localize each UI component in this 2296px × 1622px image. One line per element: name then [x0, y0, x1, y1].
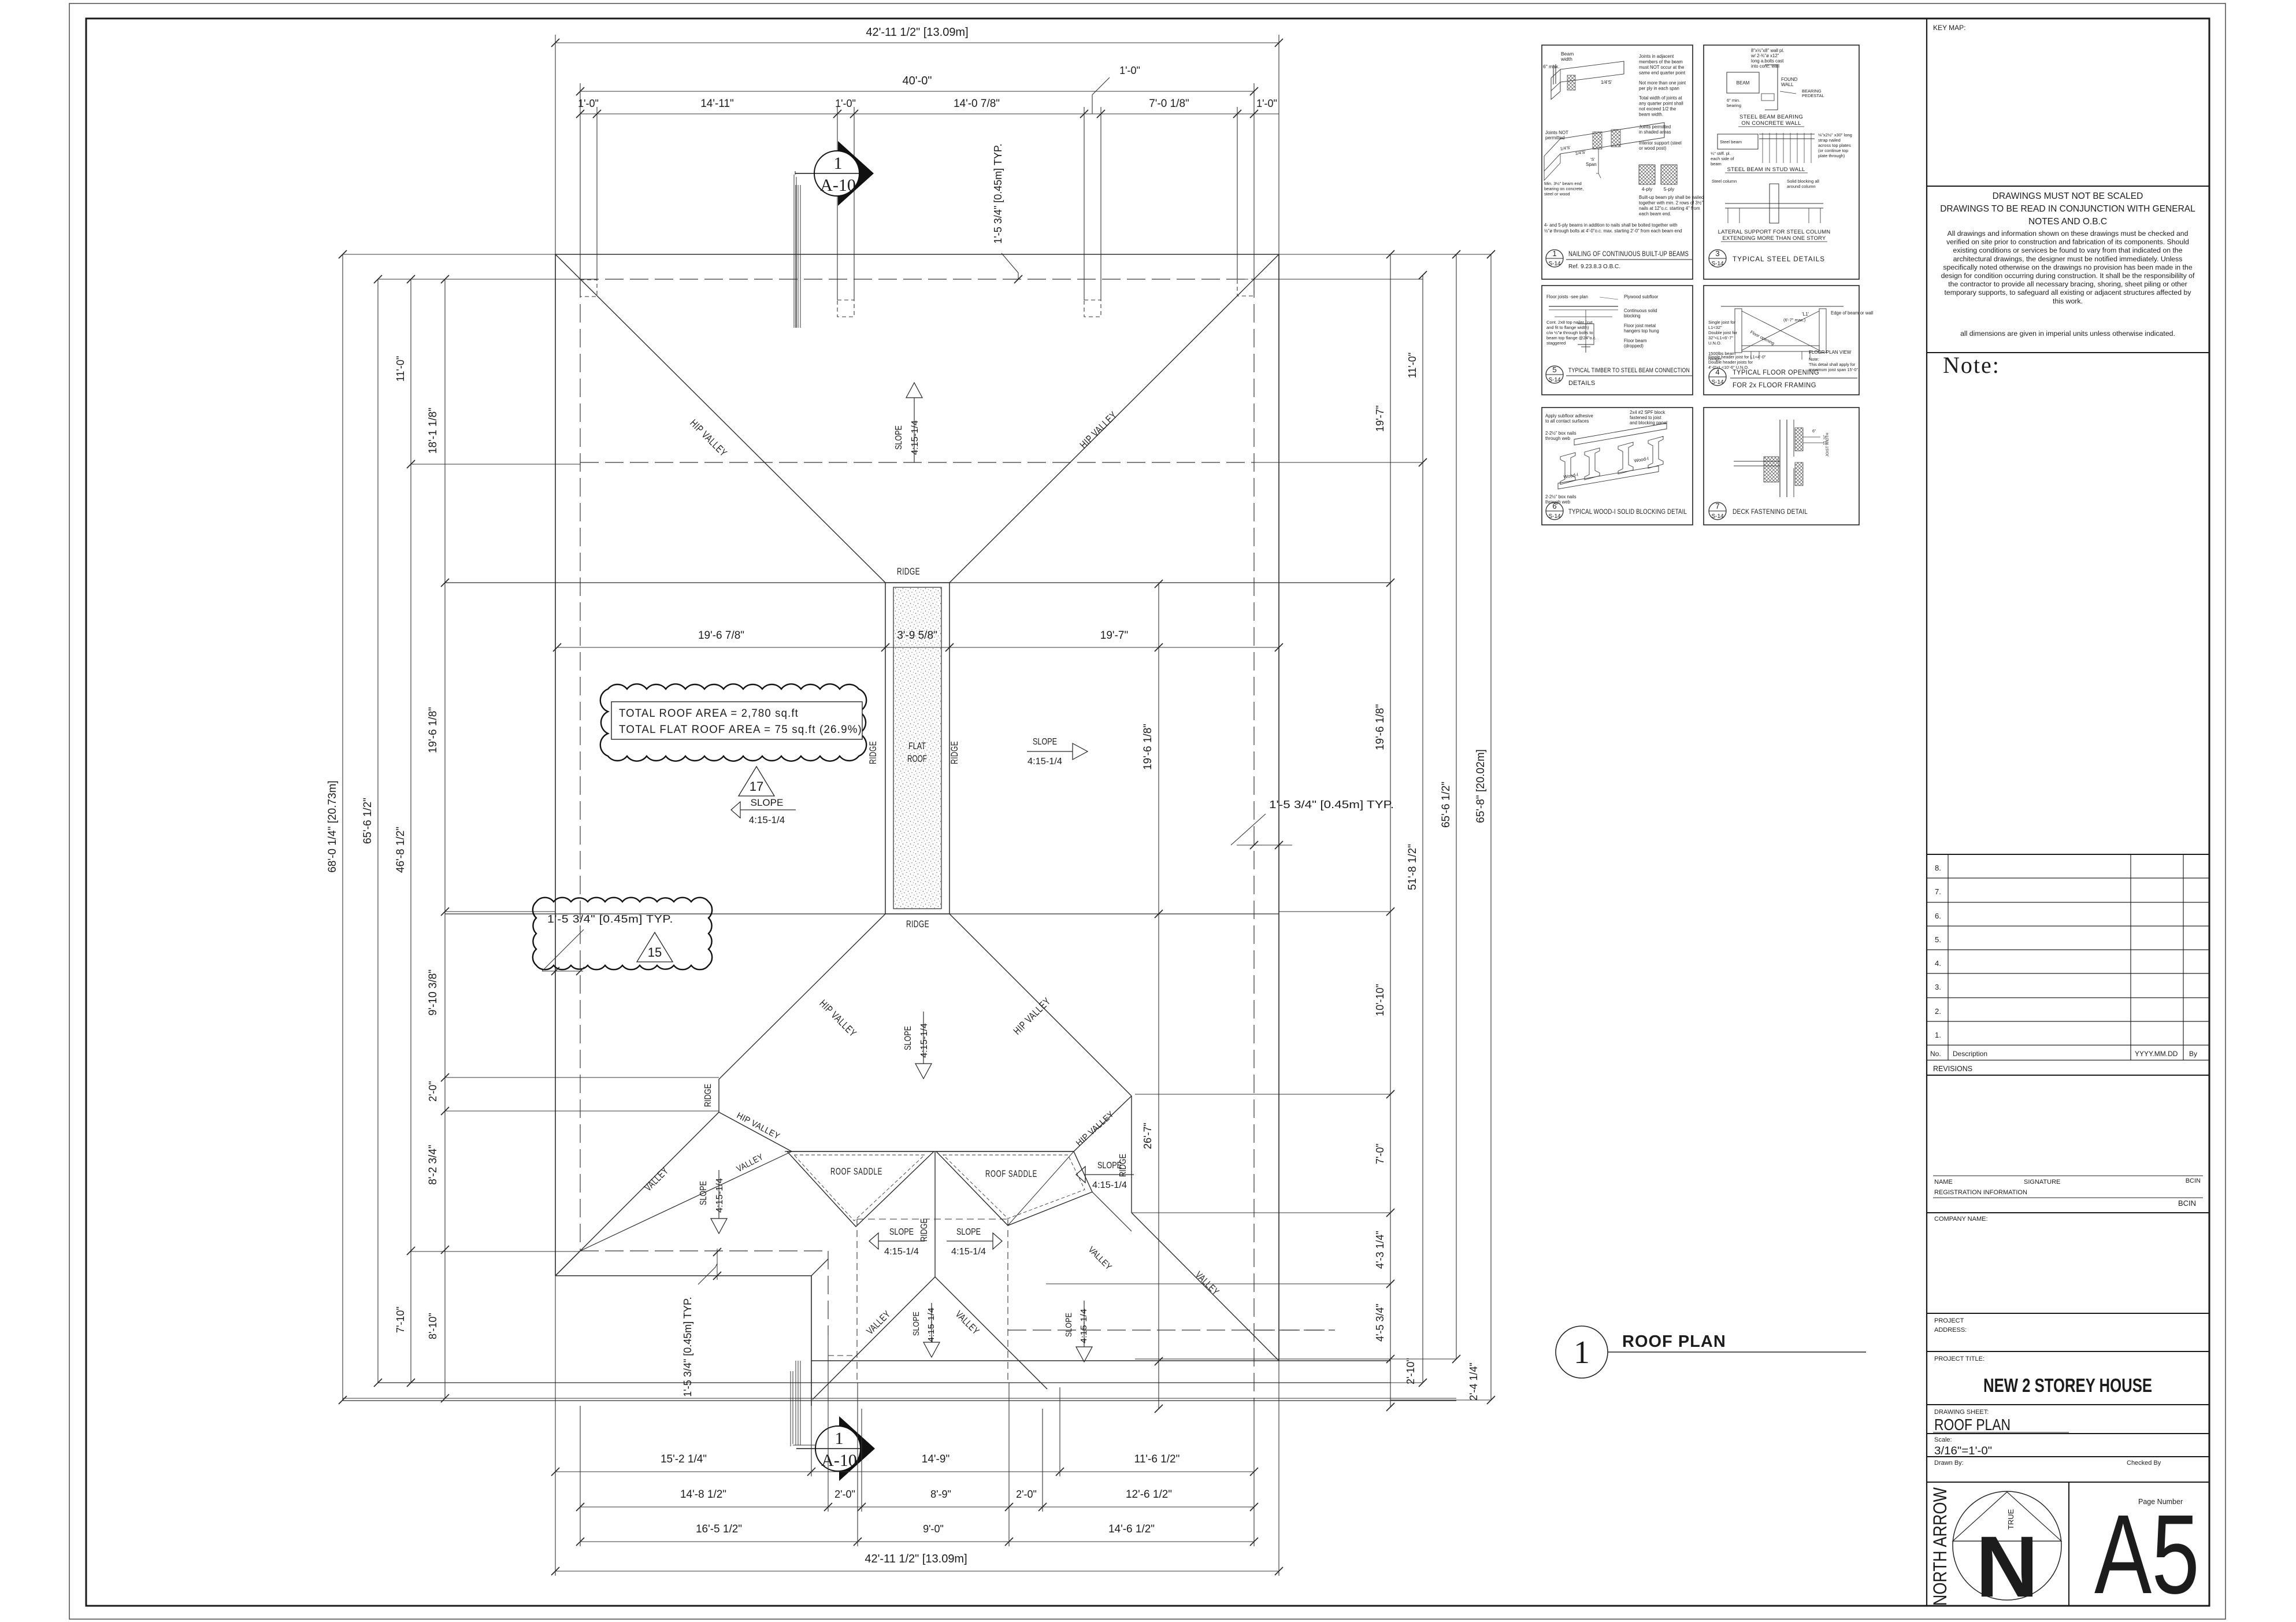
svg-text:18'-1 1/8": 18'-1 1/8" — [427, 408, 439, 454]
svg-text:8'-2 3/4": 8'-2 3/4" — [427, 1145, 439, 1185]
svg-text:this work.: this work. — [2053, 297, 2083, 305]
svg-text:must NOT occur at the: must NOT occur at the — [1639, 65, 1684, 70]
svg-text:A-10: A-10 — [821, 1451, 857, 1470]
svg-text:long a.bolts cast: long a.bolts cast — [1751, 58, 1784, 64]
svg-text:verified on site prior to cons: verified on site prior to construction a… — [1946, 238, 2189, 246]
svg-text:beam width.: beam width. — [1639, 112, 1663, 117]
svg-text:BEAM: BEAM — [1737, 80, 1750, 86]
svg-text:14'-9": 14'-9" — [922, 1453, 949, 1465]
svg-text:5.: 5. — [1935, 935, 1941, 944]
svg-text:SLOPE: SLOPE — [894, 425, 904, 450]
svg-text:across top plates: across top plates — [1818, 143, 1851, 148]
svg-text:Joints permitted: Joints permitted — [1639, 124, 1671, 129]
svg-text:KEY MAP:: KEY MAP: — [1933, 24, 1965, 32]
svg-text:4:15-1/4: 4:15-1/4 — [1092, 1180, 1127, 1190]
svg-text:SLOPE: SLOPE — [889, 1227, 914, 1237]
svg-text:DRAWING SHEET:: DRAWING SHEET: — [1934, 1409, 1989, 1416]
svg-text:BCIN: BCIN — [2186, 1177, 2201, 1184]
svg-text:in shaded areas: in shaded areas — [1639, 129, 1671, 135]
svg-text:RIDGE: RIDGE — [897, 566, 920, 577]
svg-text:fastened to joist: fastened to joist — [1630, 415, 1661, 420]
svg-text:19'-6 1/8": 19'-6 1/8" — [427, 707, 439, 753]
svg-text:Interior support (steel: Interior support (steel — [1639, 140, 1682, 146]
svg-text:14'-8 1/2": 14'-8 1/2" — [680, 1488, 726, 1501]
svg-text:19'-6 1/8": 19'-6 1/8" — [1374, 704, 1386, 750]
svg-text:1: 1 — [835, 1429, 844, 1448]
svg-text:1: 1 — [1574, 1335, 1590, 1371]
svg-text:⅛"x2½" x30" long: ⅛"x2½" x30" long — [1818, 132, 1852, 138]
svg-text:(dropped): (dropped) — [1624, 343, 1644, 349]
svg-text:S-14: S-14 — [1711, 379, 1724, 386]
svg-text:4:15-1/4: 4:15-1/4 — [926, 1308, 936, 1342]
svg-text:2'-10": 2'-10" — [1405, 1358, 1416, 1384]
svg-text:Note:: Note: — [1943, 352, 2000, 378]
svg-text:RIDGE: RIDGE — [703, 1084, 713, 1107]
svg-text:1'-0": 1'-0" — [578, 98, 599, 109]
svg-text:TYPICAL FLOOR OPENING: TYPICAL FLOOR OPENING — [1733, 368, 1819, 376]
svg-text:14'-11": 14'-11" — [700, 98, 734, 110]
svg-text:6.: 6. — [1935, 912, 1941, 920]
svg-text:Scale:: Scale: — [1934, 1436, 1952, 1443]
svg-text:Drawn By:: Drawn By: — [1934, 1460, 1964, 1467]
svg-text:5: 5 — [1552, 365, 1556, 374]
svg-text:By: By — [2189, 1050, 2197, 1058]
svg-text:2'-0": 2'-0" — [427, 1081, 439, 1102]
svg-text:each side of: each side of — [1711, 156, 1734, 161]
svg-text:U.N.O.: U.N.O. — [1708, 340, 1722, 346]
svg-text:46'-8 1/2": 46'-8 1/2" — [395, 827, 407, 873]
svg-text:51'-8 1/2": 51'-8 1/2" — [1407, 844, 1419, 890]
svg-text:Solid blocking all: Solid blocking all — [1787, 179, 1819, 184]
svg-text:COMPANY NAME:: COMPANY NAME: — [1934, 1216, 1988, 1223]
svg-text:1'-0": 1'-0" — [835, 98, 856, 109]
svg-text:specifically noted otherwise o: specifically noted otherwise on the draw… — [1943, 263, 2192, 271]
svg-text:NOTES AND O.B.C: NOTES AND O.B.C — [2028, 217, 2107, 227]
svg-text:2-2½" box nails: 2-2½" box nails — [1545, 431, 1577, 436]
svg-text:Edge of beam or wall: Edge of beam or wall — [1831, 310, 1874, 316]
svg-text:4:15-1/4: 4:15-1/4 — [951, 1247, 986, 1257]
svg-text:19'-6 7/8": 19'-6 7/8" — [698, 629, 744, 642]
svg-text:65'-6 1/2": 65'-6 1/2" — [1440, 782, 1452, 828]
svg-text:7.: 7. — [1935, 887, 1941, 896]
svg-text:Ref. 9.23.8.3 O.B.C.: Ref. 9.23.8.3 O.B.C. — [1568, 264, 1620, 270]
svg-text:BCIN: BCIN — [2178, 1199, 2196, 1208]
svg-text:4'-3 1/4": 4'-3 1/4" — [1374, 1231, 1386, 1269]
svg-text:8'-9": 8'-9" — [930, 1488, 951, 1500]
svg-text:JOIST WIDTH: JOIST WIDTH — [1826, 432, 1830, 457]
svg-text:9'-0": 9'-0" — [923, 1523, 944, 1535]
svg-text:SLOPE: SLOPE — [903, 1026, 913, 1050]
svg-text:into conc. wall: into conc. wall — [1751, 64, 1779, 69]
svg-text:19'-7": 19'-7" — [1100, 629, 1128, 642]
svg-text:14'-0 7/8": 14'-0 7/8" — [954, 98, 1000, 110]
svg-text:Joints NOT: Joints NOT — [1545, 130, 1568, 135]
svg-text:the contractor to provide all: the contractor to provide all necessary … — [1948, 280, 2187, 288]
svg-text:Note:: Note: — [1809, 357, 1819, 362]
svg-text:LATERAL SUPPORT FOR STEEL COLU: LATERAL SUPPORT FOR STEEL COLUMN — [1718, 229, 1831, 235]
svg-text:10'-10": 10'-10" — [1374, 984, 1386, 1016]
svg-text:TYPICAL STEEL DETAILS: TYPICAL STEEL DETAILS — [1733, 255, 1825, 263]
svg-text:4:15-1/4: 4:15-1/4 — [910, 420, 920, 455]
svg-text:Floor beam: Floor beam — [1624, 338, 1646, 343]
svg-text:Description: Description — [1953, 1050, 1987, 1058]
svg-text:6" max.: 6" max. — [1543, 64, 1560, 69]
svg-text:ADDRESS:: ADDRESS: — [1934, 1327, 1967, 1334]
svg-text:NAILING OF CONTINUOUS BUILT-UP: NAILING OF CONTINUOUS BUILT-UP BEAMS — [1568, 251, 1689, 258]
svg-text:Plywood subfloor: Plywood subfloor — [1624, 294, 1659, 299]
svg-text:all dimensions are given in im: all dimensions are given in imperial uni… — [1960, 329, 2175, 338]
svg-text:STEEL BEAM BEARING: STEEL BEAM BEARING — [1739, 114, 1803, 120]
svg-text:'S': 'S' — [1590, 157, 1595, 162]
svg-text:4: 4 — [1715, 368, 1719, 376]
svg-text:bearing: bearing — [1727, 103, 1741, 108]
svg-text:SLOPE: SLOPE — [1097, 1161, 1122, 1171]
svg-text:7: 7 — [1715, 502, 1719, 510]
svg-text:S-14: S-14 — [1711, 513, 1724, 520]
svg-text:6: 6 — [1552, 502, 1556, 510]
svg-text:ROOF SADDLE: ROOF SADDLE — [985, 1168, 1037, 1179]
svg-text:15: 15 — [648, 945, 662, 960]
svg-text:nails at 12"o.c. starting 4" f: nails at 12"o.c. starting 4" from — [1639, 206, 1700, 211]
svg-text:40'-0": 40'-0" — [903, 75, 932, 87]
svg-text:strap nailed: strap nailed — [1818, 138, 1841, 143]
svg-text:NAME: NAME — [1934, 1179, 1953, 1186]
svg-text:A5: A5 — [2094, 1491, 2199, 1617]
svg-text:c/w ½"ø through bolts to: c/w ½"ø through bolts to — [1546, 330, 1593, 335]
svg-text:68'-0 1/4" [20.73m]: 68'-0 1/4" [20.73m] — [327, 780, 339, 872]
svg-text:1'-5 3/4" [0.45m] TYP.: 1'-5 3/4" [0.45m] TYP. — [992, 143, 1004, 243]
svg-text:DRAWINGS TO BE READ IN CONJUNC: DRAWINGS TO BE READ IN CONJUNCTION WITH … — [1940, 204, 2195, 214]
svg-text:members of the beam: members of the beam — [1639, 60, 1683, 65]
svg-text:7'-0 1/8": 7'-0 1/8" — [1149, 98, 1189, 110]
svg-text:3: 3 — [1715, 249, 1719, 258]
svg-text:not exceed 1/2 the: not exceed 1/2 the — [1639, 106, 1676, 112]
svg-text:and fit to flange width): and fit to flange width) — [1546, 325, 1589, 330]
svg-text:11'-0": 11'-0" — [1407, 353, 1418, 379]
svg-text:SLOPE: SLOPE — [911, 1312, 921, 1336]
svg-text:beam top flange @24"o.c.: beam top flange @24"o.c. — [1546, 335, 1597, 340]
svg-text:6": 6" — [1812, 429, 1816, 434]
svg-text:4:15-1/4: 4:15-1/4 — [919, 1023, 929, 1058]
svg-text:SIGNATURE: SIGNATURE — [2024, 1179, 2060, 1186]
svg-text:All drawings and information s: All drawings and information shown on th… — [1948, 229, 2189, 238]
svg-text:15'-2 1/4": 15'-2 1/4" — [661, 1453, 707, 1465]
svg-text:Single joist for: Single joist for — [1708, 320, 1736, 325]
svg-text:YYYY.MM.DD: YYYY.MM.DD — [2135, 1050, 2178, 1058]
svg-text:N: N — [1976, 1518, 2038, 1615]
svg-text:11'-0": 11'-0" — [395, 356, 406, 382]
svg-text:beam: beam — [1711, 161, 1722, 166]
svg-text:4.: 4. — [1935, 959, 1941, 968]
svg-text:permitted: permitted — [1545, 135, 1564, 140]
svg-text:1'-0": 1'-0" — [1119, 65, 1140, 76]
svg-text:blocking: blocking — [1624, 313, 1641, 319]
svg-text:REGISTRATION INFORMATION: REGISTRATION INFORMATION — [1934, 1189, 2027, 1196]
svg-text:EXTENDING MORE THAN ONE STORY: EXTENDING MORE THAN ONE STORY — [1723, 235, 1826, 242]
svg-text:17: 17 — [750, 779, 763, 794]
svg-text:7'-10": 7'-10" — [395, 1306, 406, 1333]
svg-text:4-ply: 4-ply — [1642, 186, 1653, 192]
svg-text:'L1': 'L1' — [1802, 312, 1809, 317]
svg-text:to all contact surfaces: to all contact surfaces — [1545, 419, 1589, 424]
svg-text:PROJECT: PROJECT — [1934, 1317, 1964, 1324]
svg-text:Not more than one joint: Not more than one joint — [1639, 80, 1686, 86]
svg-text:DECK FASTENING DETAIL: DECK FASTENING DETAIL — [1733, 509, 1808, 516]
svg-text:RIDGE: RIDGE — [867, 741, 878, 764]
svg-text:2'-0": 2'-0" — [1016, 1488, 1037, 1500]
svg-text:Floor joist metal: Floor joist metal — [1624, 323, 1656, 328]
svg-text:ON CONCRETE WALL: ON CONCRETE WALL — [1741, 120, 1801, 127]
svg-text:same end quarter point: same end quarter point — [1639, 71, 1686, 76]
svg-text:19'-6 1/8": 19'-6 1/8" — [1142, 724, 1154, 770]
svg-text:Apply subfloor adhesive: Apply subfloor adhesive — [1545, 413, 1593, 419]
svg-text:1'-5 3/4" [0.45m] TYP.: 1'-5 3/4" [0.45m] TYP. — [1269, 799, 1394, 810]
svg-text:WALL: WALL — [1781, 82, 1794, 87]
svg-text:42'-11 1/2" [13.09m]: 42'-11 1/2" [13.09m] — [865, 1553, 967, 1565]
svg-text:DETAILS: DETAILS — [1568, 380, 1595, 387]
svg-text:6" min.: 6" min. — [1727, 98, 1740, 103]
svg-text:FOUND: FOUND — [1781, 77, 1798, 82]
svg-text:(or continue top: (or continue top — [1818, 148, 1848, 153]
svg-text:REVISIONS: REVISIONS — [1933, 1065, 1972, 1073]
svg-text:3/16"=1'-0": 3/16"=1'-0" — [1934, 1445, 1992, 1457]
svg-text:½"ø through bolts at 4'-0"o.c.: ½"ø through bolts at 4'-0"o.c. max. star… — [1544, 228, 1682, 234]
svg-text:9'-10 3/8": 9'-10 3/8" — [427, 969, 439, 1016]
svg-text:DRAWINGS MUST NOT BE SCALED: DRAWINGS MUST NOT BE SCALED — [1993, 191, 2143, 201]
svg-text:8"x½"x8" wall pl.: 8"x½"x8" wall pl. — [1751, 48, 1784, 53]
svg-text:1: 1 — [1552, 249, 1556, 258]
svg-text:RIDGE: RIDGE — [919, 1219, 929, 1242]
svg-text:S-14: S-14 — [1711, 261, 1724, 267]
svg-text:ROOF PLAN: ROOF PLAN — [1934, 1416, 2011, 1434]
svg-text:each beam end.: each beam end. — [1639, 212, 1671, 217]
svg-text:staggered: staggered — [1546, 340, 1566, 346]
svg-text:per ply in each span: per ply in each span — [1639, 86, 1679, 91]
svg-text:through web: through web — [1545, 436, 1571, 441]
svg-text:SLOPE: SLOPE — [1033, 737, 1057, 747]
svg-text:4:15-1/4: 4:15-1/4 — [884, 1247, 919, 1257]
svg-text:4:15-1/4: 4:15-1/4 — [1028, 757, 1062, 766]
svg-text:ROOF SADDLE: ROOF SADDLE — [830, 1166, 882, 1177]
svg-text:1'-5 3/4" [0.45m] TYP.: 1'-5 3/4" [0.45m] TYP. — [547, 913, 673, 925]
svg-text:No.: No. — [1930, 1050, 1941, 1058]
svg-text:Min. 3½" beam end: Min. 3½" beam end — [1544, 181, 1582, 186]
svg-text:NEW 2 STOREY HOUSE: NEW 2 STOREY HOUSE — [1983, 1375, 2152, 1396]
svg-text:Steel column: Steel column — [1712, 179, 1737, 184]
svg-text:SLOPE: SLOPE — [751, 797, 784, 808]
svg-text:1: 1 — [834, 154, 843, 173]
svg-text:Single header joist for L1<4'-: Single header joist for L1<4'-0" — [1708, 354, 1766, 360]
svg-text:bearing on concrete,: bearing on concrete, — [1544, 186, 1583, 191]
svg-text:L1<32": L1<32" — [1708, 325, 1722, 330]
svg-text:2'-4 1/4": 2'-4 1/4" — [1468, 1362, 1479, 1401]
svg-text:1/4'S': 1/4'S' — [1601, 80, 1612, 85]
svg-text:S-14: S-14 — [1548, 377, 1561, 383]
svg-text:¼" stiff. pl.: ¼" stiff. pl. — [1711, 151, 1731, 156]
svg-text:FLAT: FLAT — [908, 740, 926, 751]
svg-text:Steel beam: Steel beam — [1720, 139, 1742, 145]
svg-text:11'-6 1/2": 11'-6 1/2" — [1134, 1453, 1180, 1465]
svg-text:3.: 3. — [1935, 983, 1941, 991]
svg-text:PEDESTAL: PEDESTAL — [1802, 93, 1824, 98]
svg-text:4:15-1/4: 4:15-1/4 — [715, 1178, 725, 1213]
svg-text:(6'-7" max.): (6'-7" max.) — [1783, 317, 1806, 323]
svg-text:hangers top hung: hangers top hung — [1624, 328, 1659, 334]
svg-text:4:15-1/4: 4:15-1/4 — [749, 814, 785, 825]
svg-text:Double joist for: Double joist for — [1708, 330, 1738, 335]
svg-text:SLOPE: SLOPE — [956, 1227, 981, 1237]
svg-text:8.: 8. — [1935, 864, 1941, 872]
svg-text:12'-6 1/2": 12'-6 1/2" — [1126, 1488, 1172, 1501]
svg-text:Double header joists for: Double header joists for — [1708, 360, 1753, 365]
svg-text:SLOPE: SLOPE — [1064, 1313, 1074, 1337]
svg-text:2.: 2. — [1935, 1007, 1941, 1016]
svg-text:Built-up beam ply shall be nai: Built-up beam ply shall be nailed — [1639, 195, 1704, 200]
svg-text:7'-0": 7'-0" — [1374, 1143, 1386, 1164]
svg-text:steel or wood: steel or wood — [1544, 191, 1570, 197]
svg-text:width: width — [1560, 56, 1572, 62]
svg-text:26'-7": 26'-7" — [1142, 1123, 1153, 1149]
svg-text:temporary supports, to safegua: temporary supports, to safeguard all exi… — [1945, 288, 2192, 297]
svg-text:RIDGE: RIDGE — [906, 919, 929, 929]
svg-text:Cont. 2x8 top nailer (cut: Cont. 2x8 top nailer (cut — [1546, 320, 1593, 325]
svg-text:ROOF PLAN: ROOF PLAN — [1622, 1332, 1726, 1351]
svg-text:RIDGE: RIDGE — [949, 741, 960, 764]
svg-text:STEEL BEAM IN STUD WALL: STEEL BEAM IN STUD WALL — [1727, 166, 1805, 173]
svg-text:existing conditions or service: existing conditions or services be found… — [1953, 246, 2182, 254]
svg-text:14'-6 1/2": 14'-6 1/2" — [1108, 1523, 1155, 1535]
svg-text:Floor joists -see plan: Floor joists -see plan — [1546, 294, 1588, 299]
svg-text:8'-10": 8'-10" — [427, 1313, 439, 1339]
svg-text:1.: 1. — [1935, 1031, 1941, 1039]
svg-text:1'-5 3/4" [0.45m] TYP.: 1'-5 3/4" [0.45m] TYP. — [682, 1297, 693, 1397]
svg-text:1'-0": 1'-0" — [1256, 98, 1277, 109]
svg-text:and blocking panel: and blocking panel — [1630, 420, 1667, 425]
svg-text:plate through): plate through) — [1818, 153, 1845, 158]
svg-text:design for condition occurring: design for condition occurring during co… — [1941, 272, 2195, 280]
svg-text:architectural drawings, the de: architectural drawings, the designer mus… — [1953, 255, 2183, 263]
svg-text:FLOOR PLAN VIEW: FLOOR PLAN VIEW — [1809, 350, 1852, 355]
svg-text:TYPICAL WOOD-I SOLID BLOCKING: TYPICAL WOOD-I SOLID BLOCKING DETAIL — [1568, 509, 1687, 516]
svg-text:or wood post): or wood post) — [1639, 146, 1667, 151]
svg-text:2-2½" box nails: 2-2½" box nails — [1545, 494, 1577, 499]
svg-text:Checked By: Checked By — [2127, 1460, 2161, 1467]
svg-text:TYPICAL TIMBER TO STEEL BEAM C: TYPICAL TIMBER TO STEEL BEAM CONNECTION — [1568, 367, 1690, 374]
svg-text:SLOPE: SLOPE — [699, 1181, 709, 1205]
svg-text:4:15-1/4: 4:15-1/4 — [1079, 1309, 1089, 1343]
svg-text:Total width of joints at: Total width of joints at — [1639, 95, 1682, 101]
svg-text:PROJECT TITLE:: PROJECT TITLE: — [1934, 1356, 1985, 1362]
svg-text:2x4 #2 SPF block: 2x4 #2 SPF block — [1630, 410, 1665, 415]
svg-text:ROOF: ROOF — [907, 753, 927, 764]
svg-text:TOTAL ROOF AREA = 2,780 sq.ft: TOTAL ROOF AREA = 2,780 sq.ft — [619, 708, 799, 720]
svg-text:Span: Span — [1586, 162, 1597, 167]
svg-text:4'-5 3/4": 4'-5 3/4" — [1374, 1303, 1386, 1342]
svg-text:4- and 5-ply beams in addition: 4- and 5-ply beams in addition to nails … — [1544, 223, 1678, 228]
svg-text:This detail shall apply for: This detail shall apply for — [1809, 362, 1856, 367]
svg-text:around column: around column — [1787, 184, 1816, 189]
svg-text:42'-11 1/2" [13.09m]: 42'-11 1/2" [13.09m] — [866, 26, 968, 39]
svg-text:S-14: S-14 — [1548, 261, 1561, 267]
svg-text:TOTAL FLAT ROOF AREA = 75 sq.f: TOTAL FLAT ROOF AREA = 75 sq.ft (26.9%) — [619, 724, 862, 736]
svg-text:w/ 2-¾"ø x12": w/ 2-¾"ø x12" — [1750, 53, 1779, 58]
svg-text:19'-7": 19'-7" — [1374, 405, 1386, 432]
svg-text:any quarter point shall: any quarter point shall — [1639, 101, 1683, 106]
svg-text:Joints in adjacent: Joints in adjacent — [1639, 54, 1674, 59]
svg-text:65'-8" [20.02m]: 65'-8" [20.02m] — [1475, 749, 1487, 823]
svg-text:32"<L1<6'-7": 32"<L1<6'-7" — [1708, 335, 1733, 340]
svg-text:A-10: A-10 — [820, 176, 856, 195]
svg-text:Continuous solid: Continuous solid — [1624, 308, 1657, 313]
svg-text:3'-9 5/8": 3'-9 5/8" — [897, 629, 937, 642]
svg-text:FOR 2x FLOOR FRAMING: FOR 2x FLOOR FRAMING — [1733, 381, 1816, 389]
svg-text:16'-5 1/2": 16'-5 1/2" — [696, 1523, 742, 1535]
svg-text:2'-0": 2'-0" — [834, 1488, 855, 1500]
svg-text:S-14: S-14 — [1548, 513, 1561, 520]
svg-text:5-ply: 5-ply — [1664, 186, 1675, 192]
svg-text:together with min. 2 rows of 3: together with min. 2 rows of 3½" — [1639, 201, 1703, 206]
svg-text:65'-6 1/2": 65'-6 1/2" — [362, 798, 374, 844]
svg-text:NORTH ARROW: NORTH ARROW — [1930, 1487, 1950, 1606]
